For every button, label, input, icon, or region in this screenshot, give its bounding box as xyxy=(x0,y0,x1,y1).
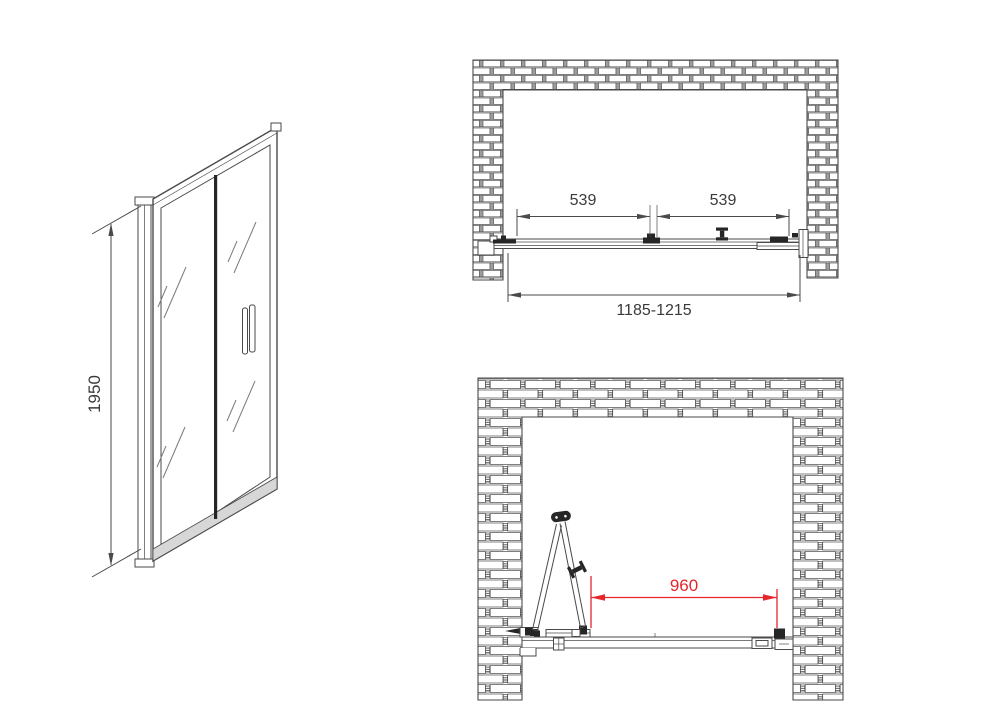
arrowhead-right-icon xyxy=(787,292,800,297)
arrowhead-down-icon xyxy=(108,553,113,566)
drawing-svg: 1950 xyxy=(0,0,1000,707)
walk-in-width-label: 960 xyxy=(670,576,698,595)
arrowhead-right-icon xyxy=(637,214,650,219)
knob-handle-icon xyxy=(716,228,728,241)
technical-drawing-canvas: 1950 xyxy=(0,0,1000,707)
front-view: 1950 xyxy=(85,123,281,577)
arrowhead-left-icon xyxy=(657,214,670,219)
left-wall-bracket xyxy=(478,241,494,255)
arrowhead-left-icon xyxy=(517,214,530,219)
height-dimension-label: 1950 xyxy=(85,375,104,413)
overall-width-label: 1185-1215 xyxy=(616,302,691,319)
door-rail xyxy=(505,626,793,657)
overall-width-dimension: 1185-1215 xyxy=(508,253,800,319)
top-plan-view: 539 539 1185-1215 xyxy=(473,60,838,319)
arrowhead-left-icon xyxy=(591,594,605,601)
floor-guide-icon xyxy=(554,638,565,650)
right-door-width-label: 539 xyxy=(710,192,737,209)
door-frame xyxy=(153,123,281,561)
height-dimension: 1950 xyxy=(85,206,141,577)
left-step-bracket xyxy=(520,648,536,656)
open-plan-view: 960 xyxy=(478,378,843,700)
door-rail xyxy=(478,228,808,258)
center-connector xyxy=(643,238,660,244)
folded-door xyxy=(533,510,588,631)
arrowhead-left-icon xyxy=(508,292,521,297)
left-door-width-label: 539 xyxy=(570,192,597,209)
center-divider xyxy=(214,175,217,519)
hinge-icon xyxy=(550,510,571,523)
walk-in-width-dimension: 960 xyxy=(591,576,777,628)
arrowhead-up-icon xyxy=(108,223,113,236)
left-door-width-dimension: 539 xyxy=(517,192,657,237)
wall-profile xyxy=(135,197,154,567)
arrowhead-right-icon xyxy=(776,214,789,219)
arrowhead-right-icon xyxy=(763,594,777,601)
